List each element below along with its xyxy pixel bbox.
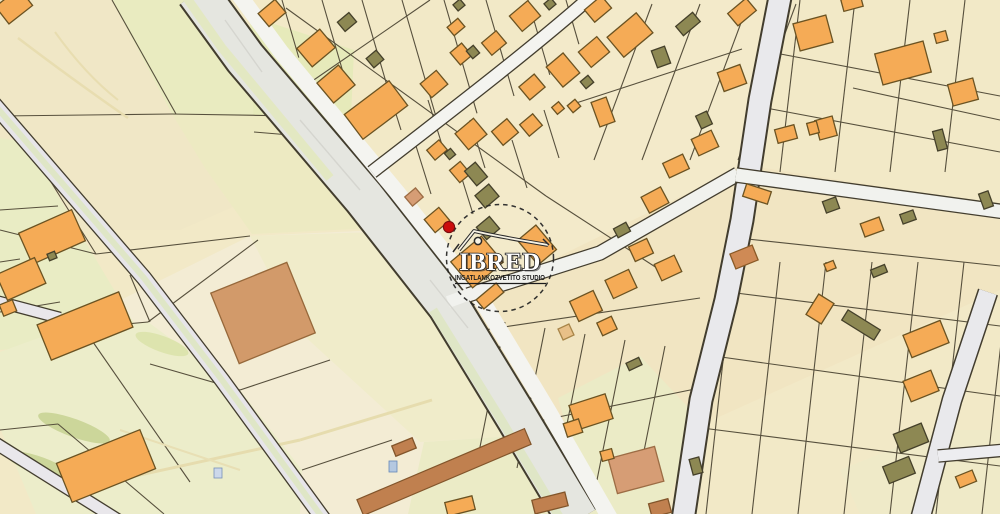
svg-text:IBRED: IBRED — [459, 249, 541, 276]
svg-text:INGATLANKOZVETITO STUDIO: INGATLANKOZVETITO STUDIO — [455, 275, 545, 282]
